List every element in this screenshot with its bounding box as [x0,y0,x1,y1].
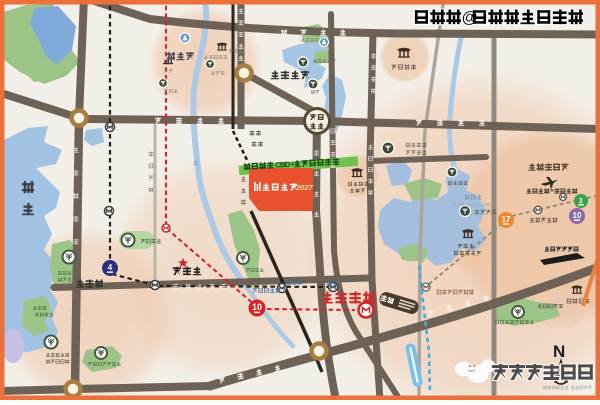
svg-text:2027: 2027 [295,183,314,192]
svg-text:10: 10 [252,302,262,312]
svg-text:4: 4 [108,263,113,272]
svg-text:2: 2 [579,198,583,205]
svg-text:DIANSHAN LAKE: DIANSHAN LAKE [453,202,492,207]
svg-text:10: 10 [573,211,582,220]
svg-text:17: 17 [502,215,511,224]
svg-text:N: N [553,342,565,361]
